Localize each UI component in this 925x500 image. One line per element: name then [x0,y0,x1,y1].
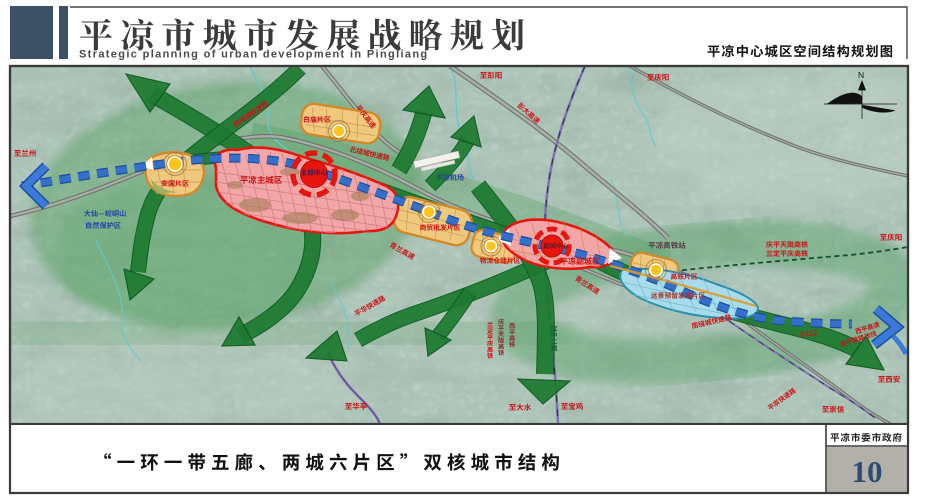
svg-text:10: 10 [852,454,883,489]
svg-text:N: N [858,70,864,80]
svg-text:Strategic planning of urban de: Strategic planning of urban development … [79,49,429,61]
